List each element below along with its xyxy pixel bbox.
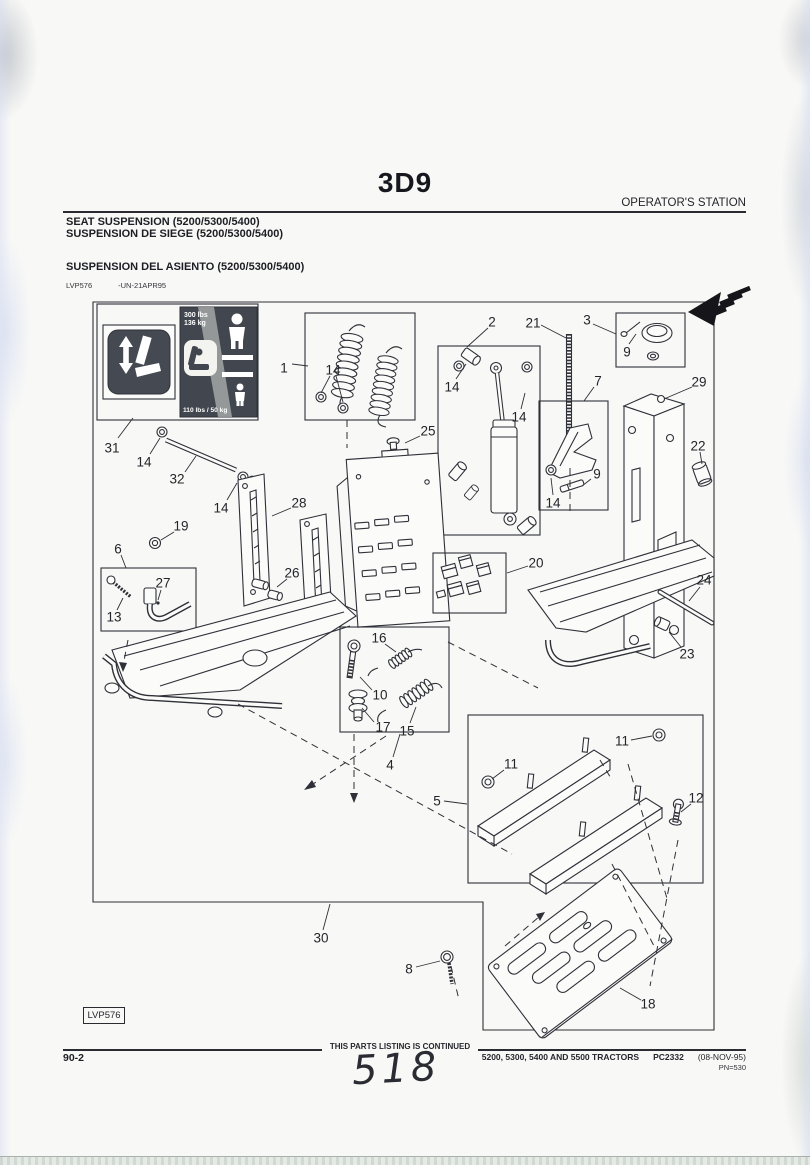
- callout-11: 11: [504, 757, 518, 772]
- callout-2: 2: [488, 315, 496, 330]
- callout-leader-11: [492, 770, 504, 779]
- part-9-pin: [560, 479, 585, 492]
- callout-leader-14: [551, 478, 553, 495]
- callout-31: 31: [104, 441, 119, 456]
- part-17-grommet: [349, 690, 367, 721]
- callout-22: 22: [690, 439, 705, 454]
- callout-19: 19: [173, 519, 188, 534]
- callout-leader-24: [689, 587, 700, 601]
- part-14-bushing: [448, 460, 468, 481]
- part-31-warning-decal: 300 lbs 136 kg: [97, 304, 258, 420]
- callout-leader-2: [467, 328, 488, 347]
- callout-leader-14: [321, 376, 330, 393]
- callout-leader-8: [416, 961, 440, 967]
- callout-12: 12: [688, 791, 703, 806]
- callout-leader-31: [118, 418, 133, 438]
- callout-3: 3: [583, 313, 591, 328]
- callout-20: 20: [528, 556, 543, 571]
- callout-8: 8: [405, 962, 413, 977]
- catalog-code: PC2332: [653, 1052, 684, 1062]
- callout-27: 27: [155, 576, 170, 591]
- callout-1: 1: [280, 361, 288, 376]
- callout-29: 29: [691, 375, 706, 390]
- callout-32: 32: [169, 472, 184, 487]
- callout-25: 25: [420, 424, 435, 439]
- continuation-arrow-icon: [688, 288, 750, 326]
- part-7-bracket-box: [539, 401, 608, 510]
- callout-5: 5: [433, 794, 441, 809]
- callout-9: 9: [593, 467, 601, 482]
- part-18-base-plate: [486, 867, 673, 1040]
- callout-leader-14: [227, 483, 237, 500]
- max-weight-text: 300 lbs: [184, 312, 208, 319]
- callout-23: 23: [679, 647, 694, 662]
- callout-6: 6: [114, 542, 122, 557]
- part-14-bushing: [464, 484, 480, 501]
- callout-leader-14: [150, 438, 160, 454]
- revision-date: (08-NOV-95): [698, 1052, 746, 1062]
- part-1-springs-box: [305, 313, 415, 427]
- part-19-nut: [150, 538, 161, 549]
- callout-9: 9: [623, 345, 631, 360]
- callout-14: 14: [511, 410, 527, 425]
- callout-leader-7: [584, 387, 594, 401]
- page-number: 90-2: [63, 1052, 84, 1064]
- callout-21: 21: [525, 316, 540, 331]
- callout-leader-32: [185, 456, 196, 472]
- callout-leader-15: [410, 707, 416, 723]
- min-weight-text: 110 lbs / 50 kg: [183, 407, 227, 414]
- part-29-rear-frame: [528, 394, 714, 664]
- callout-leader-13: [117, 598, 123, 610]
- callout-28: 28: [291, 496, 306, 511]
- footer-publication-info: 5200, 5300, 5400 AND 5500 TRACTORSPC2332…: [482, 1052, 746, 1062]
- callout-leader-30: [323, 904, 330, 930]
- part-10-bolt: [344, 639, 361, 678]
- models-line: 5200, 5300, 5400 AND 5500 TRACTORS: [482, 1052, 639, 1062]
- left-base-frame: [104, 592, 356, 717]
- part-22-bushing: [691, 460, 712, 487]
- callout-13: 13: [106, 610, 121, 625]
- part-14-nut: [338, 403, 348, 413]
- figure-label: LVP576: [83, 1007, 125, 1024]
- callout-7: 7: [594, 374, 602, 389]
- callout-leader-14: [521, 393, 525, 409]
- callout-leader-19: [161, 532, 174, 540]
- part-25-button: [387, 437, 400, 449]
- callout-11: 11: [615, 734, 629, 749]
- part-9-screw: [621, 322, 640, 336]
- callout-26: 26: [284, 566, 299, 581]
- part-14-nut: [316, 392, 326, 402]
- callout-leader-3: [593, 324, 616, 334]
- callout-leader-11: [631, 736, 652, 740]
- callout-leader-4: [393, 734, 400, 757]
- callout-leader-29: [664, 387, 692, 399]
- weight-limit-decal: 300 lbs 136 kg: [180, 307, 257, 417]
- callout-14: 14: [444, 380, 460, 395]
- callout-leader-10: [360, 677, 372, 690]
- part-14-nut: [546, 465, 556, 475]
- callout-15: 15: [399, 724, 414, 739]
- part-11-nut: [653, 729, 665, 741]
- footer-rule-right: [478, 1049, 746, 1051]
- callout-leader-20: [507, 566, 528, 573]
- callout-18: 18: [640, 997, 655, 1012]
- callout-leader-25: [405, 436, 420, 443]
- part-5-rails-box: [468, 715, 703, 894]
- callout-leader-1: [292, 364, 308, 366]
- callout-17: 17: [375, 720, 390, 735]
- footer-rule-left: [63, 1049, 322, 1051]
- part-14-nut: [157, 427, 167, 437]
- part-12-bolt: [669, 798, 685, 826]
- slide-rail: [478, 738, 610, 846]
- handwritten-mark: 518: [351, 1044, 442, 1095]
- part-14-bushing: [517, 515, 538, 535]
- part-13-bolt: [107, 576, 131, 597]
- callout-10: 10: [372, 688, 387, 703]
- callout-14: 14: [213, 501, 229, 516]
- callout-leader-21: [541, 325, 566, 338]
- release-handle: [144, 588, 190, 619]
- adjuster-knob: [642, 324, 672, 343]
- callout-14: 14: [136, 455, 152, 470]
- exploded-parts-diagram: 300 lbs 136 kg: [0, 0, 810, 1165]
- right-base-frame: [528, 540, 714, 632]
- shock-absorber: [491, 363, 518, 526]
- part-2-shock-box: [438, 346, 540, 535]
- callout-24: 24: [696, 573, 712, 588]
- callout-14: 14: [325, 363, 341, 378]
- callout-leader-9: [629, 334, 636, 344]
- parts-catalog-page: 3D9 OPERATOR'S STATION SEAT SUSPENSION (…: [0, 0, 810, 1165]
- part-11-nut: [482, 776, 494, 788]
- print-number: PN=530: [719, 1063, 746, 1072]
- callout-leader-5: [444, 801, 467, 804]
- callout-leader-17: [362, 708, 374, 722]
- callout-30: 30: [313, 931, 328, 946]
- callout-leader-6: [121, 555, 126, 568]
- callout-leader-27: [158, 590, 161, 600]
- callout-14: 14: [545, 496, 561, 511]
- part-4-hardware-box: [340, 627, 449, 732]
- callout-leader-16: [385, 644, 396, 652]
- max-weight-kg-text: 136 kg: [184, 320, 206, 327]
- callout-4: 4: [386, 758, 394, 773]
- callout-16: 16: [371, 631, 386, 646]
- callout-leader-18: [620, 988, 641, 1000]
- suspension-plate: [334, 435, 450, 628]
- callout-leader-28: [272, 508, 291, 516]
